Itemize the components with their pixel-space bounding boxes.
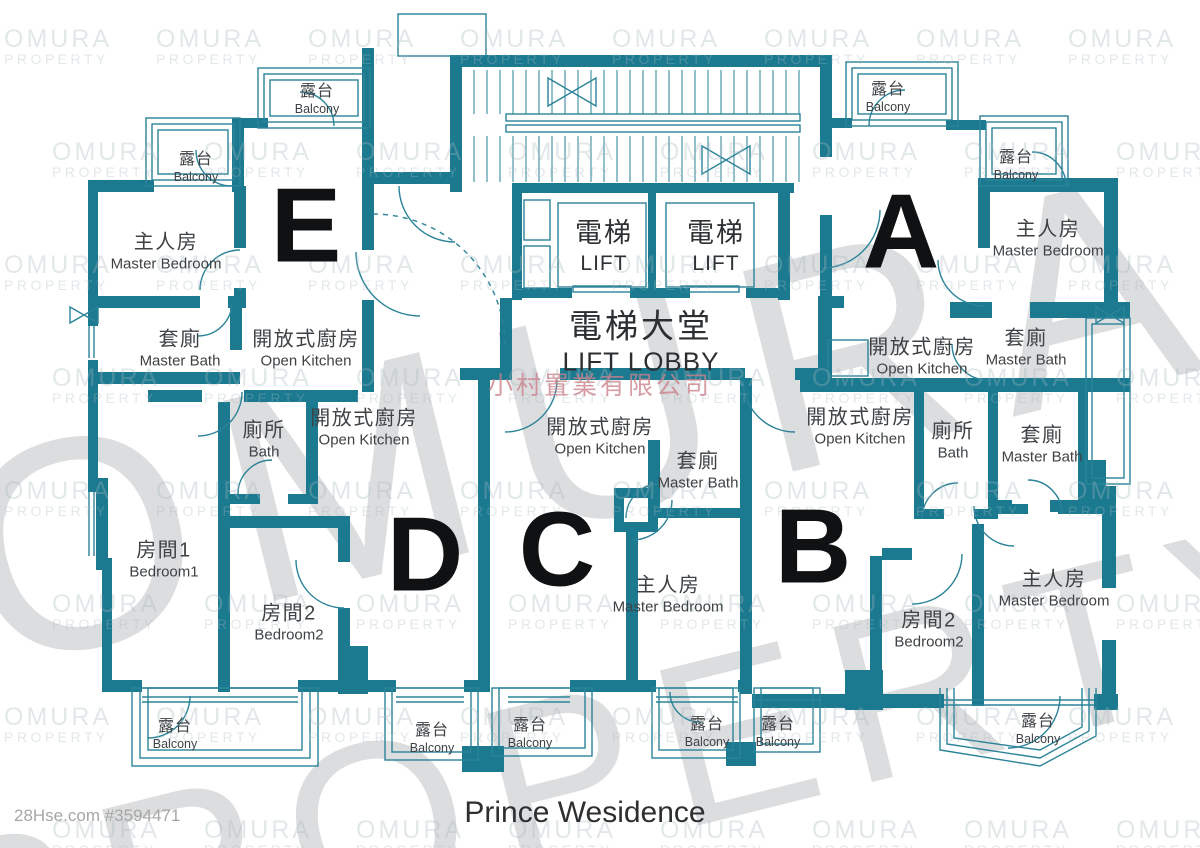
source-credit: 28Hse.com #3594471 <box>14 806 180 826</box>
plan-title: Prince Wesidence <box>464 796 705 830</box>
wall-notch <box>624 498 648 522</box>
stair-core <box>466 70 810 182</box>
floor-plan-drawing <box>0 0 1200 848</box>
floor-plan: OMURA PROPERTY <box>0 0 1200 848</box>
